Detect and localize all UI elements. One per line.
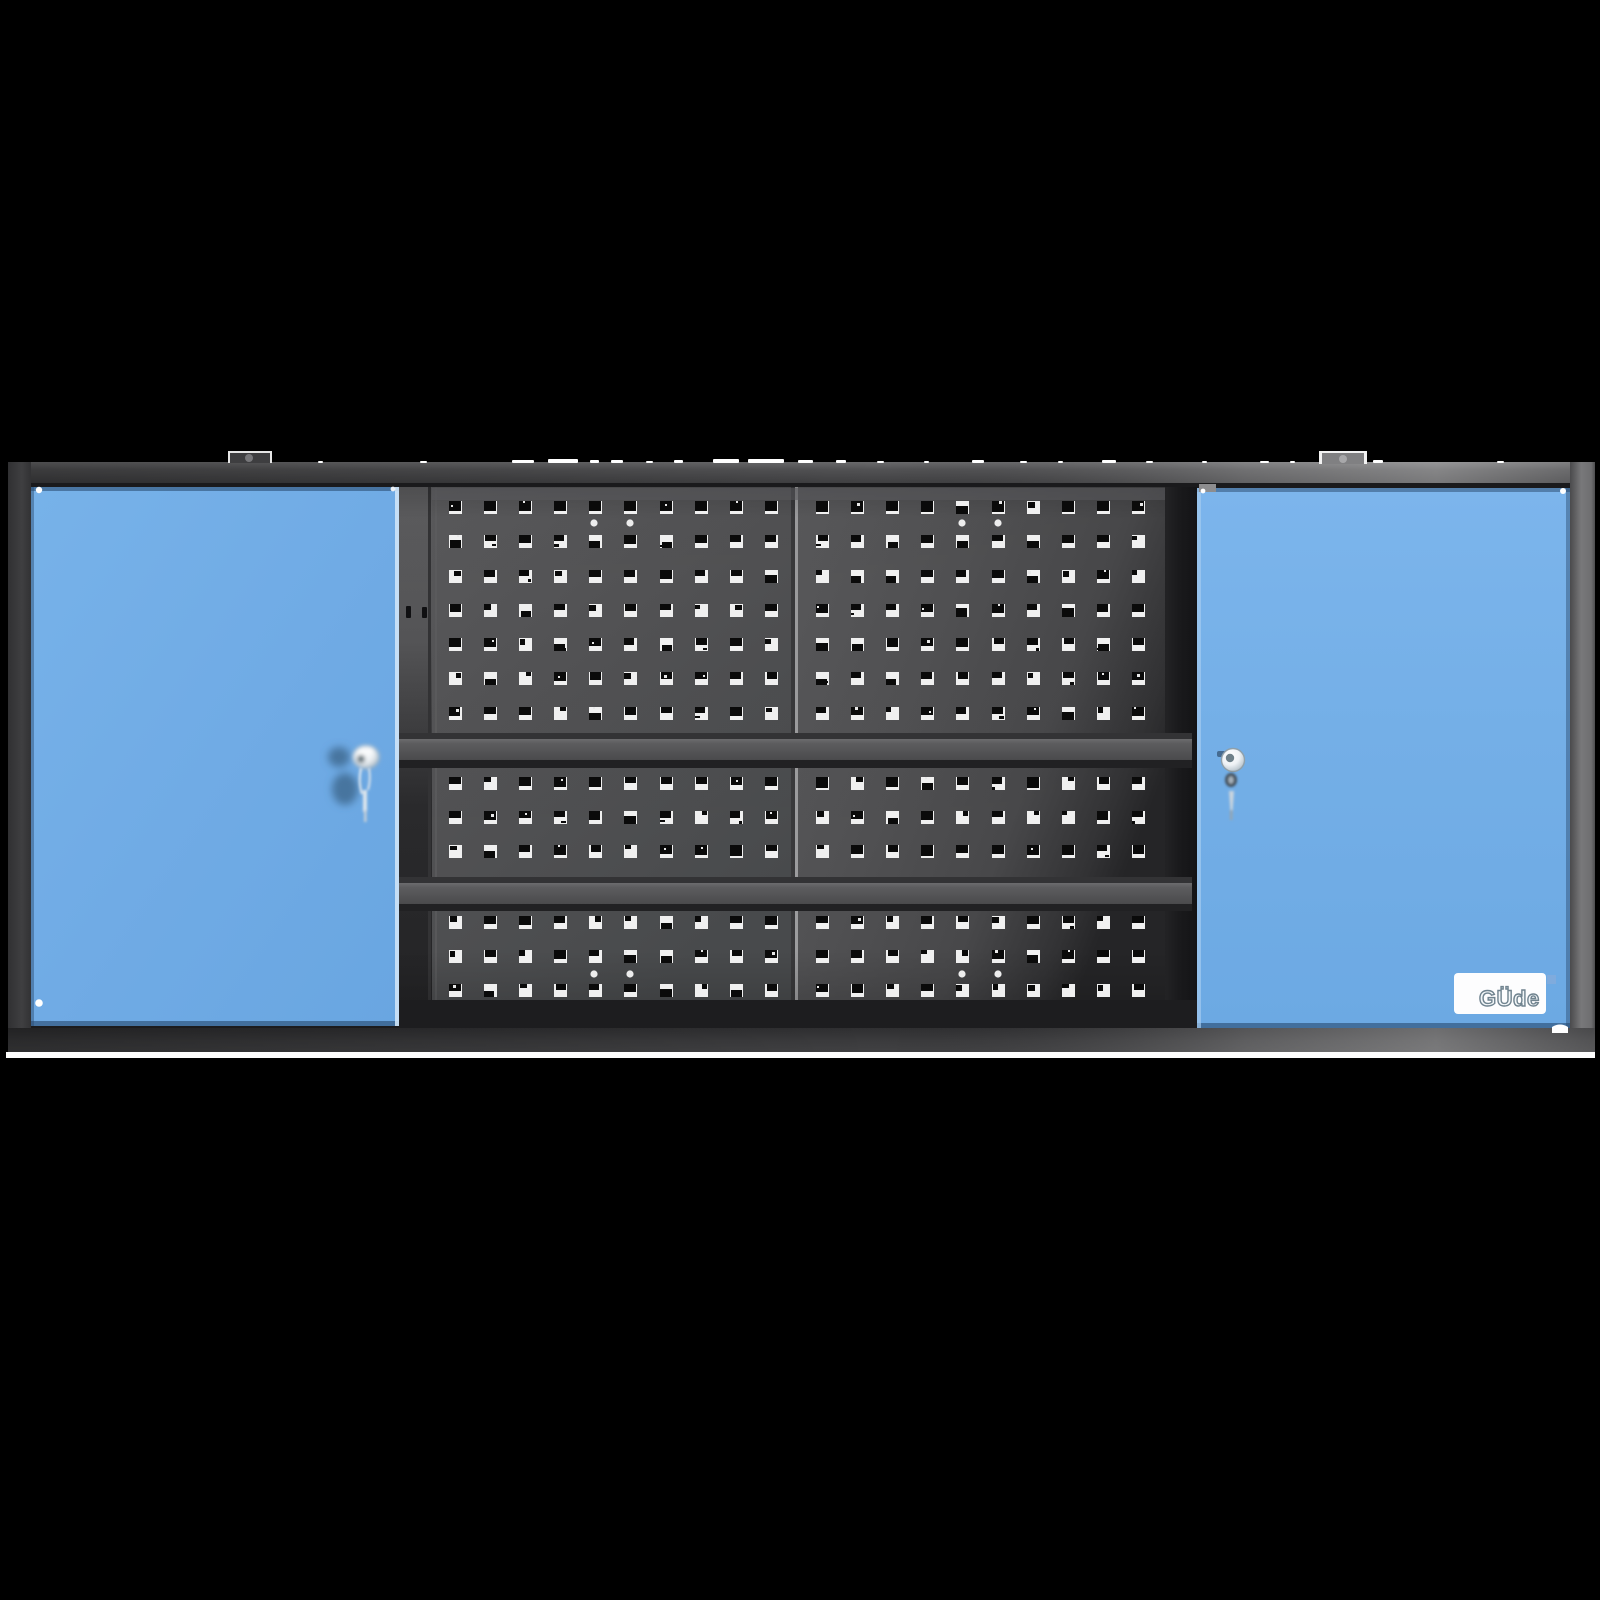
svg-text:GÜde: GÜde: [1479, 986, 1540, 1011]
